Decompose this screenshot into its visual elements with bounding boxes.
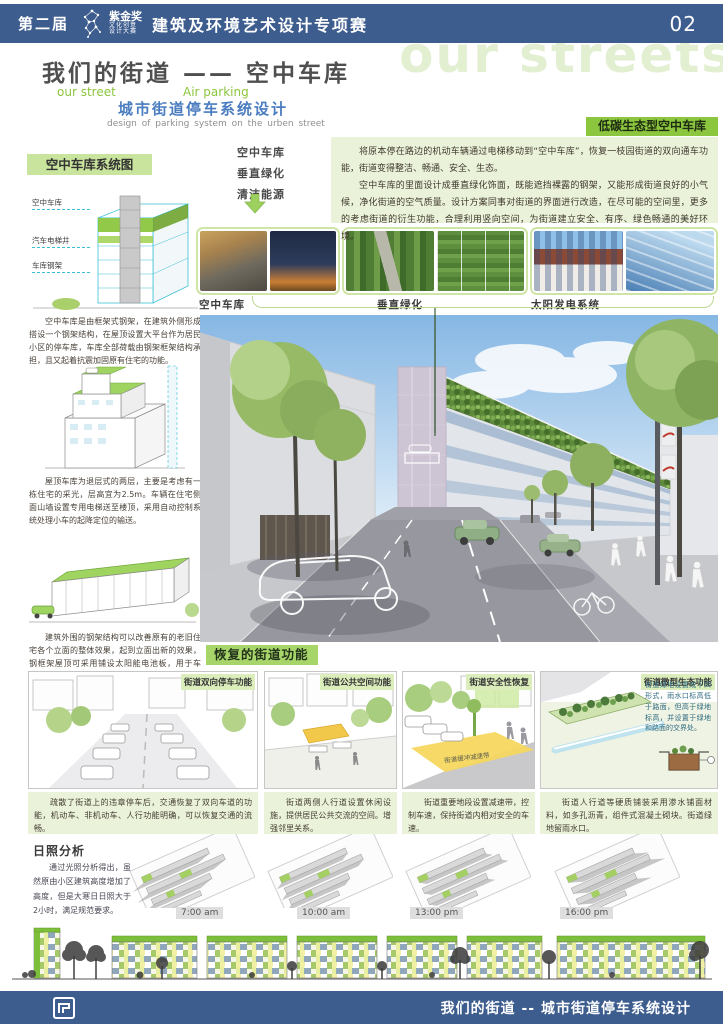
ecology-annotation: 街道绿地设置成下凹形式，雨水口标高低于路面，但高于绿地标高，并设置于绿地和路面的… (645, 680, 711, 734)
street-elevation (12, 926, 712, 986)
photo-group-air-garage (196, 227, 340, 295)
system-caption-2: 屋顶车库为退层式的两层，主要是考虑有一栋住宅的采光，层高宜为2.5m。车辆在住宅… (29, 476, 201, 528)
panel-public-space: 街道公共空间功能 (264, 671, 397, 789)
street-rendering (200, 315, 718, 642)
poster-title: 我们的街道 —— 空中车库 (42, 54, 350, 88)
photo-steel-frame-garage (200, 231, 267, 291)
competition-poster: our streets 第二届 紫金奖 (0, 0, 723, 1024)
footer-logo-icon (52, 996, 76, 1020)
title-en-right: Air parking (183, 85, 249, 99)
sun-analysis-paragraph: 通过光照分析得出，虽然原由小区建筑高度增加了高度，但是大寒日日照大于2小时，满足… (33, 861, 131, 919)
page-number: 02 (670, 12, 697, 36)
intro-paragraph-1: 将原本停在路边的机动车辆通过电梯移动到“空中车库”，恢复一枝园街道的双向通车功能… (341, 144, 708, 178)
edition-label: 第二届 (18, 13, 69, 34)
system-diagram-label: 空中车库系统图 (27, 154, 152, 175)
time-label-7am: 7:00 am (176, 907, 223, 919)
photo-caption-air-garage: 空中车库 (199, 297, 245, 312)
constellation-logo-icon (77, 8, 107, 40)
panel-two-way-parking: 街道双向停车功能 (28, 671, 258, 789)
photo-night-parking-building (270, 231, 337, 291)
diagram1-label-steel-frame: 车库钢架 (32, 260, 90, 273)
award-logo: 紫金奖 文化创意 设计大赛 (77, 8, 142, 40)
panel-caption-micro-ecology: 街道人行道等硬质铺装采用渗水铺面材料，如多孔沥青，组件式混凝土砌块。街道绿地留雨… (540, 792, 718, 834)
arrow-down-icon (243, 194, 267, 214)
footer-bar: 我们的街道 -- 城市街道停车系统设计 (0, 991, 723, 1024)
time-label-13pm: 13:00 pm (410, 907, 463, 919)
restore-functions-label: 恢复的街道功能 (206, 645, 318, 665)
sun-diagram-16pm (545, 834, 680, 908)
axon-diagram-stepped-roof (40, 356, 190, 474)
competition-title: 建筑及环境艺术设计专项赛 (152, 12, 368, 36)
award-sub2: 设计大赛 (109, 29, 142, 35)
intro-label: 低碳生态型空中车库 (586, 117, 718, 136)
panel-safety: 街道安全性恢复 (402, 671, 535, 789)
panel-caption-safety: 街道重要地段设置减速带，控制车速，保持街道内相对安全的车速。 (402, 792, 535, 834)
panel-caption-public-space: 街道两侧人行道设置休闲设施，提供居民公共交流的空间。增强邻里关系。 (264, 792, 397, 834)
title-en-left: our street (57, 85, 116, 99)
panel-caption-two-way: 疏散了街道上的违章停车后，交通恢复了双向车道的功能，机动车、非机动车、人行功能明… (28, 792, 258, 834)
sun-analysis-title: 日照分析 (33, 842, 85, 859)
header-bar: 第二届 紫金奖 文化创意 设计 (0, 4, 723, 43)
connector-line (434, 308, 436, 436)
intro-paragraph-2: 空中车库的里面设计成垂直绿化饰面，既能遮挡裸露的钢架，又能形成街道良好的小气候，… (341, 178, 708, 246)
diagram1-label-car-elevator: 汽车电梯井 (32, 235, 90, 248)
axon-diagram-roof-garage (24, 530, 202, 630)
panel-header-two-way: 街道双向停车功能 (181, 674, 255, 690)
intro-paragraphs: 将原本停在路边的机动车辆通过电梯移动到“空中车库”，恢复一枝园街道的双向通车功能… (331, 137, 718, 223)
award-logo-text: 紫金奖 文化创意 设计大赛 (109, 11, 142, 35)
footer-title: 我们的街道 -- 城市街道停车系统设计 (441, 998, 691, 1018)
diagram1-label-garage: 空中车库 (32, 197, 90, 210)
sun-diagram-7am (120, 834, 255, 908)
sun-diagram-13pm (396, 834, 531, 908)
keyword-vertical-green: 垂直绿化 (237, 165, 285, 181)
keyword-air-garage: 空中车库 (237, 144, 285, 160)
panel-header-public-space: 街道公共空间功能 (320, 674, 394, 690)
caption-bracket (252, 296, 714, 308)
panel-header-safety: 街道安全性恢复 (466, 674, 532, 690)
subtitle-en: design of parking system on the urben st… (107, 119, 325, 129)
time-label-16pm: 16:00 pm (560, 907, 613, 919)
time-label-10am: 10:00 am (297, 907, 350, 919)
subtitle-cn: 城市街道停车系统设计 (118, 98, 288, 119)
sun-diagram-10am (258, 834, 393, 908)
